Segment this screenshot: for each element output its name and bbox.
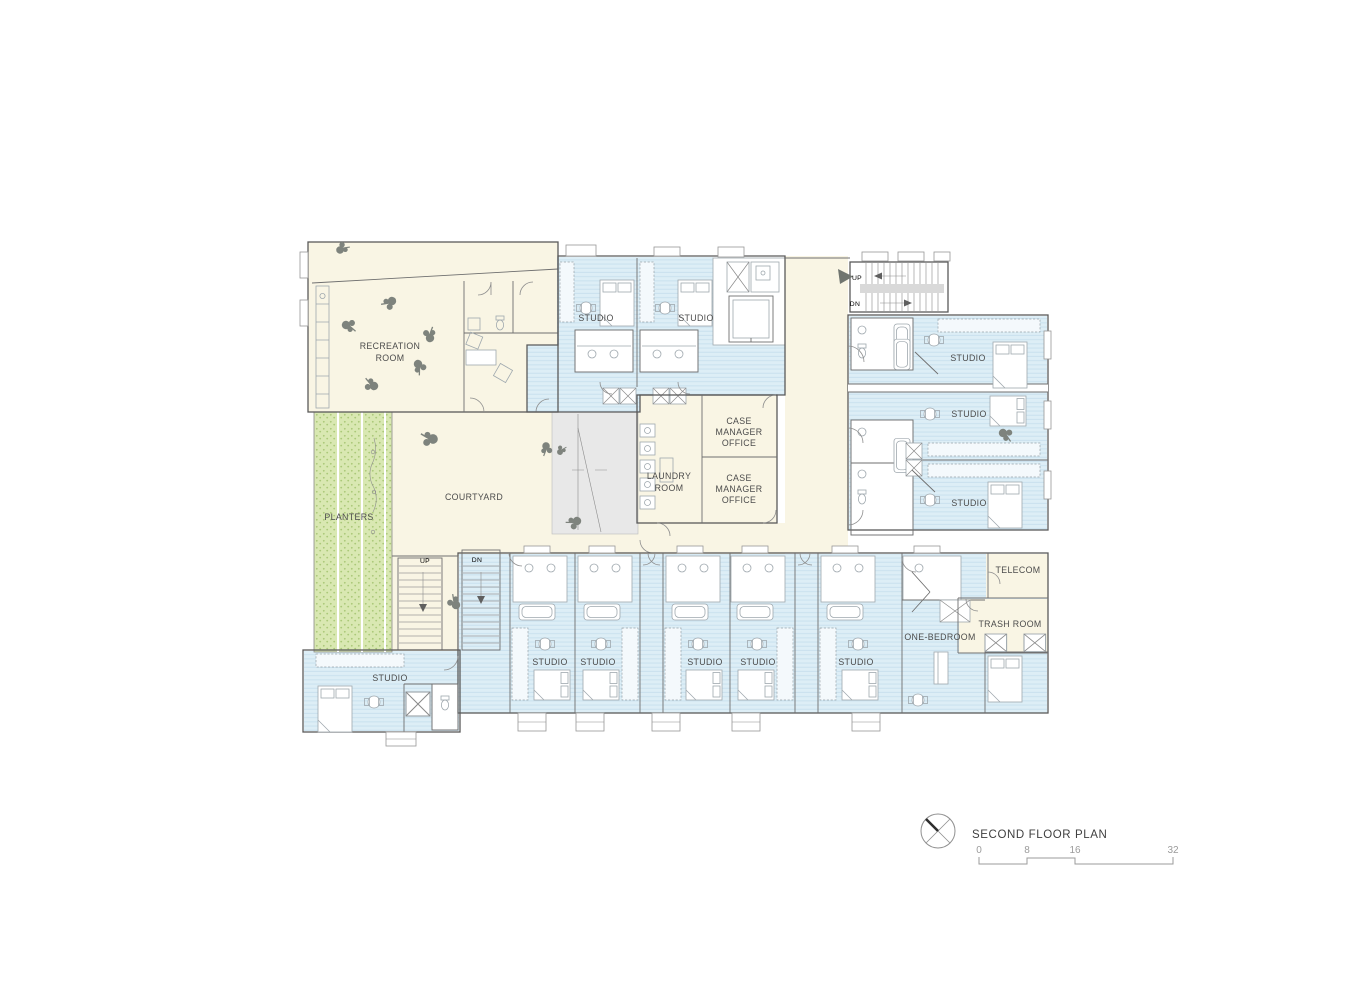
bed-icon [738,670,774,700]
kitchen-icon [928,464,1040,477]
kitchen-icon [665,628,681,700]
balcony [386,732,416,746]
stair-landing [860,284,944,293]
label-up: UP [852,275,862,282]
courtyard-ramp [552,412,638,534]
kitchen-icon [622,628,638,700]
vestibule-fill [712,345,785,395]
desk-icon [466,350,496,365]
bed-icon [988,482,1022,528]
scale-bar: 0 8 16 32 [976,845,1179,864]
label-up: UP [420,558,430,565]
planters [314,412,392,652]
label-studio: STUDIO [740,657,775,667]
label-studio: STUDIO [951,409,986,419]
label-studio: STUDIO [678,313,713,323]
label-studio: STUDIO [580,657,615,667]
bed-icon [988,656,1022,702]
label-trash-room: TRASH ROOM [978,619,1041,629]
label-laundry: LAUNDRY [647,471,691,481]
shaft-icon [406,692,430,716]
label-laundry: ROOM [655,483,684,493]
window-tab [1044,471,1051,499]
bed-icon [842,670,878,700]
sofa-icon [934,652,948,684]
label-case-manager: OFFICE [722,495,756,505]
label-courtyard: COURTYARD [445,492,503,502]
floor-plan: UP DN [0,0,1364,1000]
bed-icon [534,670,570,700]
label-case-manager: MANAGER [716,427,763,437]
scale-tick-32: 32 [1167,845,1179,856]
washer-row [640,424,655,509]
scale-tick-16: 16 [1069,845,1081,856]
lobby-fill [527,345,558,412]
kitchen-icon [560,262,574,322]
label-studio: STUDIO [372,673,407,683]
plan-title: SECOND FLOOR PLAN [972,829,1107,841]
label-recreation: RECREATION [360,341,421,351]
label-studio: STUDIO [838,657,873,667]
title-block: SECOND FLOOR PLAN 0 8 16 32 [921,814,1179,864]
closet-icon [653,388,669,404]
tub-icon [894,339,910,369]
label-case-manager: OFFICE [722,438,756,448]
label-telecom: TELECOM [996,565,1041,575]
label-studio: STUDIO [532,657,567,667]
label-case-manager: CASE [726,416,751,426]
label-dn: DN [472,557,482,564]
bed-icon [990,396,1026,426]
trash-chute-icon [1024,634,1046,652]
corridor-fill [785,256,848,553]
label-one-bedroom: ONE-BEDROOM [904,632,975,642]
north-arrow-icon [921,814,955,848]
bed-icon [318,686,352,732]
scale-tick-8: 8 [1024,845,1030,856]
closet-icon [906,443,922,459]
kitchen-icon [938,319,1040,332]
room-telecom-fill [986,554,1048,598]
balcony [518,713,546,731]
closet-icon [620,388,636,404]
label-case-manager: CASE [726,473,751,483]
scale-tick-0: 0 [976,845,982,856]
label-studio: STUDIO [951,498,986,508]
balcony [652,713,680,731]
window-tab [1044,331,1051,359]
closet-icon [603,388,619,404]
label-studio: STUDIO [687,657,722,667]
label-case-manager: MANAGER [716,484,763,494]
label-studio: STUDIO [578,313,613,323]
kitchen-icon [928,443,1040,456]
balcony [576,713,604,731]
balcony [732,713,760,731]
label-planters: PLANTERS [324,512,373,522]
kitchen-icon [316,654,404,667]
bed-icon [686,670,722,700]
label-dn: DN [850,301,860,308]
label-studio: STUDIO [950,353,985,363]
bed-icon [993,342,1027,388]
closet-icon [670,388,686,404]
scale-bar-line [979,857,1173,864]
kitchen-icon [820,628,836,700]
trash-chute-icon [985,634,1007,652]
kitchen-icon [777,628,793,700]
kitchen-icon [640,262,654,322]
balcony [852,713,880,731]
kitchen-icon [512,628,528,700]
label-recreation: ROOM [376,353,405,363]
bed-icon [583,670,619,700]
closet-icon [906,460,922,476]
window-tab [1044,401,1051,429]
